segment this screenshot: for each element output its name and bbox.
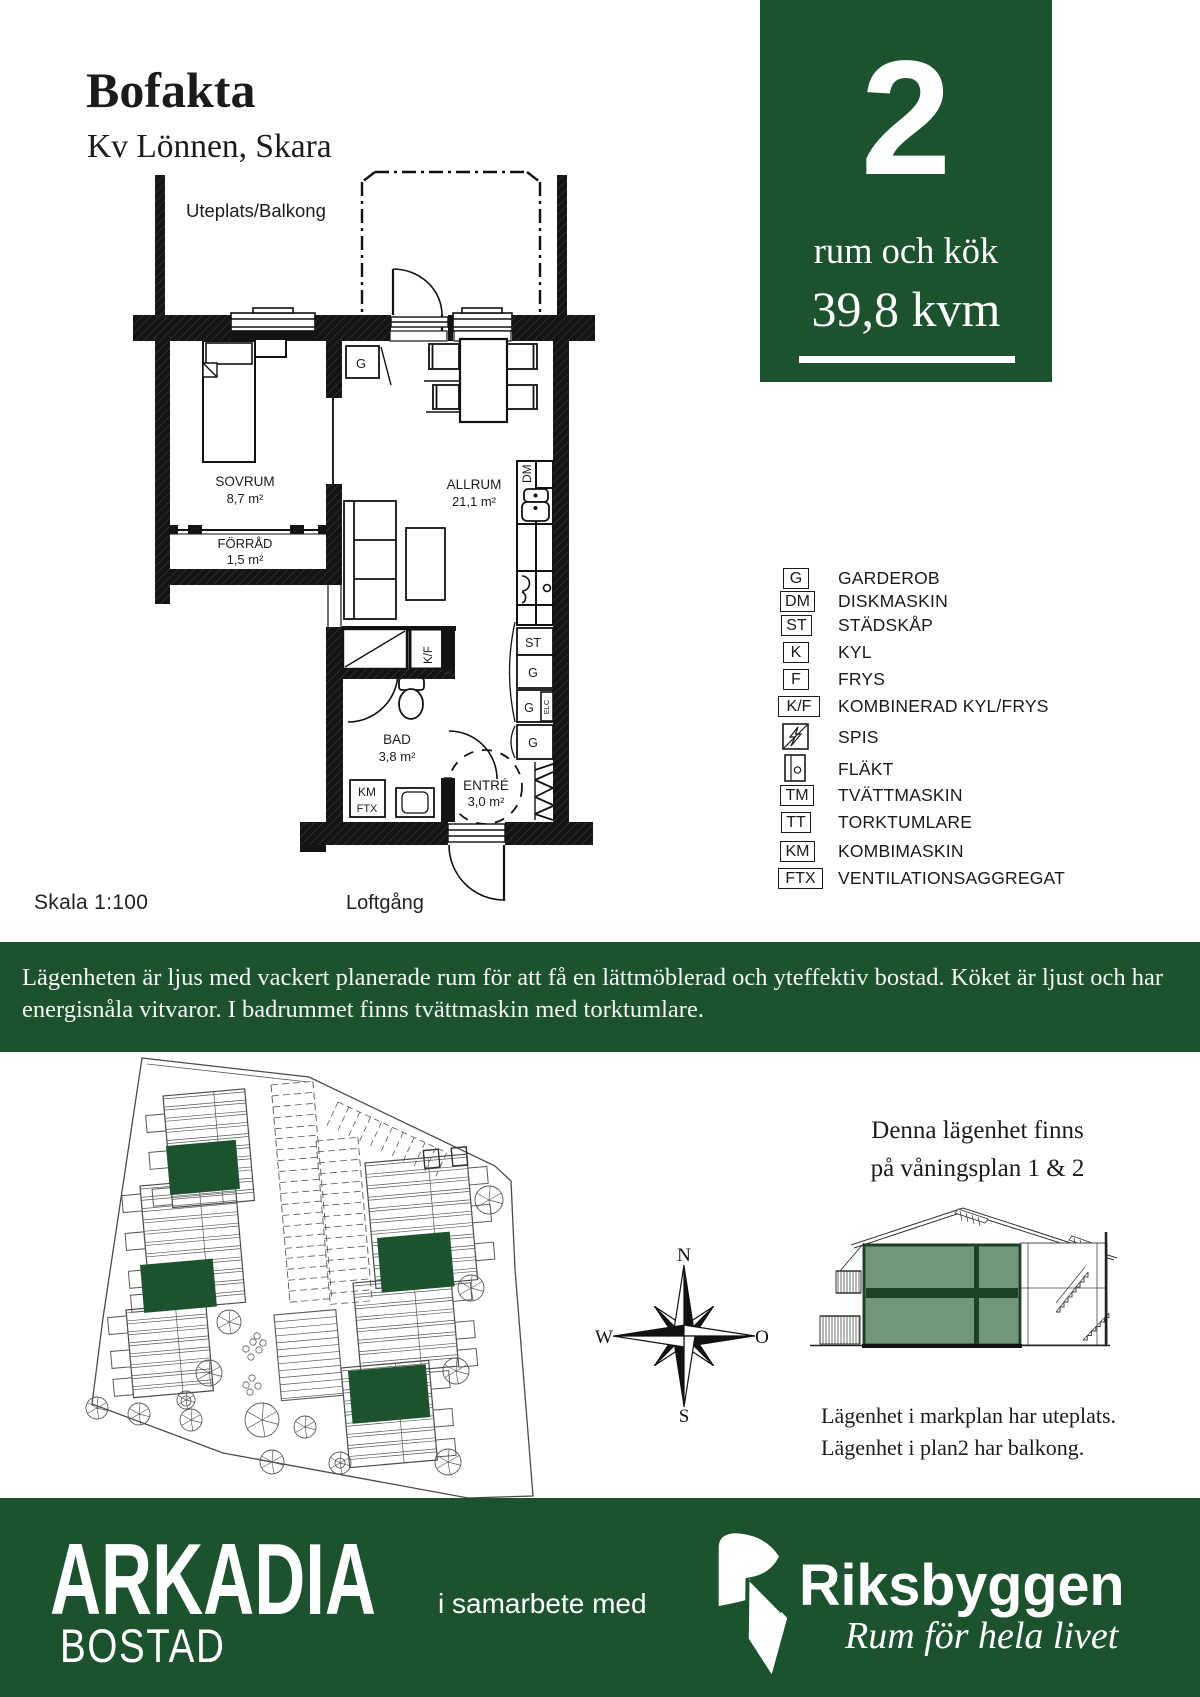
svg-text:W: W bbox=[595, 1327, 613, 1348]
svg-text:S: S bbox=[679, 1406, 690, 1427]
svg-text:O: O bbox=[755, 1327, 769, 1348]
svg-text:N: N bbox=[677, 1245, 691, 1266]
